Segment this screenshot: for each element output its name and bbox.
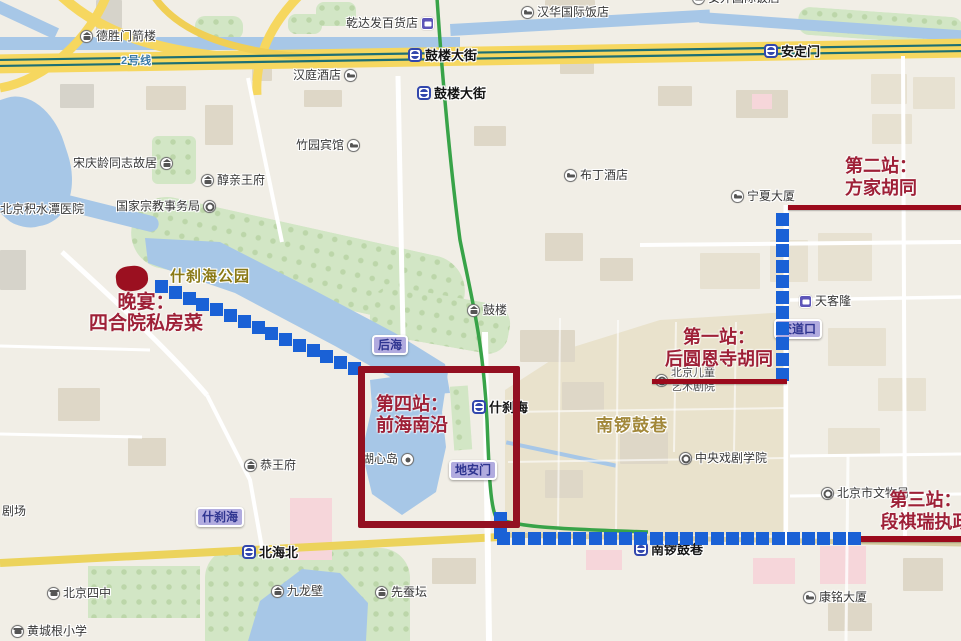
metro-station[interactable]: 鼓楼大街 xyxy=(408,45,477,64)
poi-label: 天客隆 xyxy=(815,295,851,308)
hotel-icon xyxy=(803,591,816,604)
route-dot xyxy=(320,350,333,363)
route-dot xyxy=(741,532,754,545)
route-dot xyxy=(238,315,251,328)
annotation-stop3: 第三站： 段祺瑞执政 xyxy=(868,490,961,534)
area-label: 南锣鼓巷 xyxy=(596,411,668,436)
temple-icon xyxy=(160,157,173,170)
poi-hotel[interactable]: 汉庭酒店 xyxy=(293,69,357,82)
poi-temple[interactable]: 醇亲王府 xyxy=(201,174,265,187)
poi-label: 竹园宾馆 xyxy=(296,139,344,152)
poi-hotel[interactable]: 宁夏大厦 xyxy=(731,190,795,203)
route-dot xyxy=(528,532,541,545)
stop-underline xyxy=(652,379,787,384)
route-dot xyxy=(210,303,223,316)
metro-station[interactable]: 北海北 xyxy=(242,542,298,561)
route-dot xyxy=(650,532,663,545)
route-dot xyxy=(665,532,678,545)
temple-icon xyxy=(80,30,93,43)
map-canvas[interactable]: 德胜门箭楼乾达发百货店汉华国际饭店安外国际饭店汉庭酒店竹园宾馆布丁酒店宋庆龄同志… xyxy=(0,0,961,641)
route-dot xyxy=(497,532,510,545)
metro-station[interactable]: 鼓楼大街 xyxy=(417,83,486,102)
hotel-icon xyxy=(692,0,705,5)
route-dot xyxy=(589,532,602,545)
annotation-stop1-line1: 第一站： xyxy=(661,327,777,349)
route-dot xyxy=(787,532,800,545)
route-dot xyxy=(293,339,306,352)
poi-temple[interactable]: 恭王府 xyxy=(244,459,296,472)
route-dot xyxy=(558,532,571,545)
route-dot xyxy=(776,275,789,288)
annotation-stop4-line1: 第四站： xyxy=(376,394,448,415)
route-dot xyxy=(776,244,789,257)
poi-temple[interactable]: 先蚕坛 xyxy=(375,586,427,599)
road-name-bubble: 后海 xyxy=(372,335,408,355)
gov-icon xyxy=(821,487,834,500)
poi-label: 恭王府 xyxy=(260,459,296,472)
gov-icon xyxy=(679,452,692,465)
annotation-stop2-line2: 方家胡同 xyxy=(845,178,917,200)
hotel-icon xyxy=(344,69,357,82)
annotation-stop2: 第二站： 方家胡同 xyxy=(845,156,917,200)
route-dot xyxy=(848,532,861,545)
station-label: 鼓楼大街 xyxy=(434,83,486,102)
route-dot xyxy=(680,532,693,545)
poi-hotel[interactable]: 康铭大厦 xyxy=(803,591,867,604)
route-dot xyxy=(776,337,789,350)
school-icon xyxy=(11,625,24,638)
route-dot xyxy=(334,356,347,369)
poi-label: 先蚕坛 xyxy=(391,586,427,599)
metro-icon xyxy=(408,48,422,62)
metro-icon xyxy=(242,545,256,559)
poi-label: 汉庭酒店 xyxy=(293,69,341,82)
route-dot xyxy=(695,532,708,545)
route-dot xyxy=(252,321,265,334)
poi-label: 康铭大厦 xyxy=(819,591,867,604)
poi-temple[interactable]: 鼓楼 xyxy=(467,304,507,317)
poi-temple[interactable]: 宋庆龄同志故居 xyxy=(73,157,173,170)
poi-hotel[interactable]: 汉华国际饭店 xyxy=(521,6,609,19)
route-dot xyxy=(512,532,525,545)
poi-label: 剧场 xyxy=(2,505,26,518)
poi-gov[interactable]: 中央戏剧学院 xyxy=(679,452,767,465)
poi-gov[interactable]: 国家宗教事务局 xyxy=(116,200,216,213)
temple-icon xyxy=(467,304,480,317)
annotation-stop2-line1: 第二站： xyxy=(845,156,917,178)
poi-label: 乾达发百货店 xyxy=(346,17,418,30)
poi-label[interactable]: 剧场 xyxy=(2,505,26,518)
annotation-dinner-line2: 四合院私房菜 xyxy=(87,313,205,334)
stop4-highlight-box xyxy=(358,366,520,528)
poi-label: 安外国际饭店 xyxy=(708,0,780,5)
route-dot xyxy=(776,229,789,242)
poi-label: 汉华国际饭店 xyxy=(537,6,609,19)
gov-icon xyxy=(203,200,216,213)
route-dot xyxy=(543,532,556,545)
route-dot xyxy=(776,213,789,226)
annotation-stop1: 第一站： 后圆恩寺胡同 xyxy=(661,327,777,371)
area-label: 2号线 xyxy=(121,52,152,68)
station-label: 安定门 xyxy=(781,41,820,60)
metro-icon xyxy=(764,44,778,58)
poi-label[interactable]: 北京积水潭医院 xyxy=(0,203,84,216)
shop-icon xyxy=(421,17,434,30)
route-dot xyxy=(776,353,789,366)
stop-underline xyxy=(788,205,961,210)
stop-underline xyxy=(861,536,961,542)
route-dot xyxy=(265,327,278,340)
temple-icon xyxy=(201,174,214,187)
annotation-dinner: 晚宴： 四合院私房菜 xyxy=(87,292,205,334)
poi-label: 鼓楼 xyxy=(483,304,507,317)
route-dot xyxy=(224,309,237,322)
annotation-dinner-line1: 晚宴： xyxy=(87,292,205,313)
route-dot xyxy=(604,532,617,545)
poi-label: 宋庆龄同志故居 xyxy=(73,157,157,170)
poi-label: 宁夏大厦 xyxy=(747,190,795,203)
poi-shop[interactable]: 乾达发百货店 xyxy=(346,17,434,30)
metro-station[interactable]: 安定门 xyxy=(764,41,820,60)
route-dot xyxy=(619,532,632,545)
shop-icon xyxy=(799,295,812,308)
poi-label: 黄城根小学 xyxy=(27,625,87,638)
route-dot xyxy=(573,532,586,545)
metro-icon xyxy=(417,86,431,100)
poi-shop[interactable]: 天客隆 xyxy=(799,295,851,308)
hotel-icon xyxy=(564,169,577,182)
temple-icon xyxy=(271,585,284,598)
route-dot xyxy=(776,291,789,304)
poi-label: 醇亲王府 xyxy=(217,174,265,187)
annotation-stop4: 第四站： 前海南沿 xyxy=(376,394,448,436)
station-label: 鼓楼大街 xyxy=(425,45,477,64)
hotel-icon xyxy=(347,139,360,152)
temple-icon xyxy=(244,459,257,472)
poi-school[interactable]: 黄城根小学 xyxy=(11,625,87,638)
poi-label: 九龙壁 xyxy=(287,585,323,598)
route-dot xyxy=(634,532,647,545)
route-dot xyxy=(711,532,724,545)
poi-label: 国家宗教事务局 xyxy=(116,200,200,213)
poi-label: 北京积水潭医院 xyxy=(0,203,84,216)
route-dot xyxy=(776,260,789,273)
route-dot xyxy=(833,532,846,545)
road-name-bubble: 什刹海 xyxy=(196,507,244,527)
station-label: 北海北 xyxy=(259,542,298,561)
route-dot xyxy=(307,344,320,357)
poi-temple[interactable]: 九龙壁 xyxy=(271,585,323,598)
route-dot xyxy=(817,532,830,545)
route-dot xyxy=(776,306,789,319)
route-dot xyxy=(279,333,292,346)
poi-hotel[interactable]: 竹园宾馆 xyxy=(296,139,360,152)
poi-temple[interactable]: 德胜门箭楼 xyxy=(80,30,156,43)
annotation-stop3-line2: 段祺瑞执政 xyxy=(868,512,961,534)
route-dot xyxy=(772,532,785,545)
poi-hotel[interactable]: 安外国际饭店 xyxy=(692,0,780,5)
route-dot xyxy=(726,532,739,545)
annotation-stop1-line2: 后圆恩寺胡同 xyxy=(661,349,777,371)
hotel-icon xyxy=(521,6,534,19)
temple-icon xyxy=(375,586,388,599)
poi-label: 布丁酒店 xyxy=(580,169,628,182)
route-dot xyxy=(756,532,769,545)
school-icon xyxy=(47,587,60,600)
route-dot xyxy=(776,322,789,335)
route-dot xyxy=(802,532,815,545)
poi-label: 德胜门箭楼 xyxy=(96,30,156,43)
hotel-icon xyxy=(731,190,744,203)
poi-hotel[interactable]: 布丁酒店 xyxy=(564,169,628,182)
annotation-stop3-line1: 第三站： xyxy=(868,490,961,512)
poi-label: 北京四中 xyxy=(63,587,111,600)
area-label: 什刹海公园 xyxy=(170,265,250,286)
poi-school[interactable]: 北京四中 xyxy=(47,587,111,600)
annotation-stop4-line2: 前海南沿 xyxy=(376,415,448,436)
poi-label: 中央戏剧学院 xyxy=(695,452,767,465)
